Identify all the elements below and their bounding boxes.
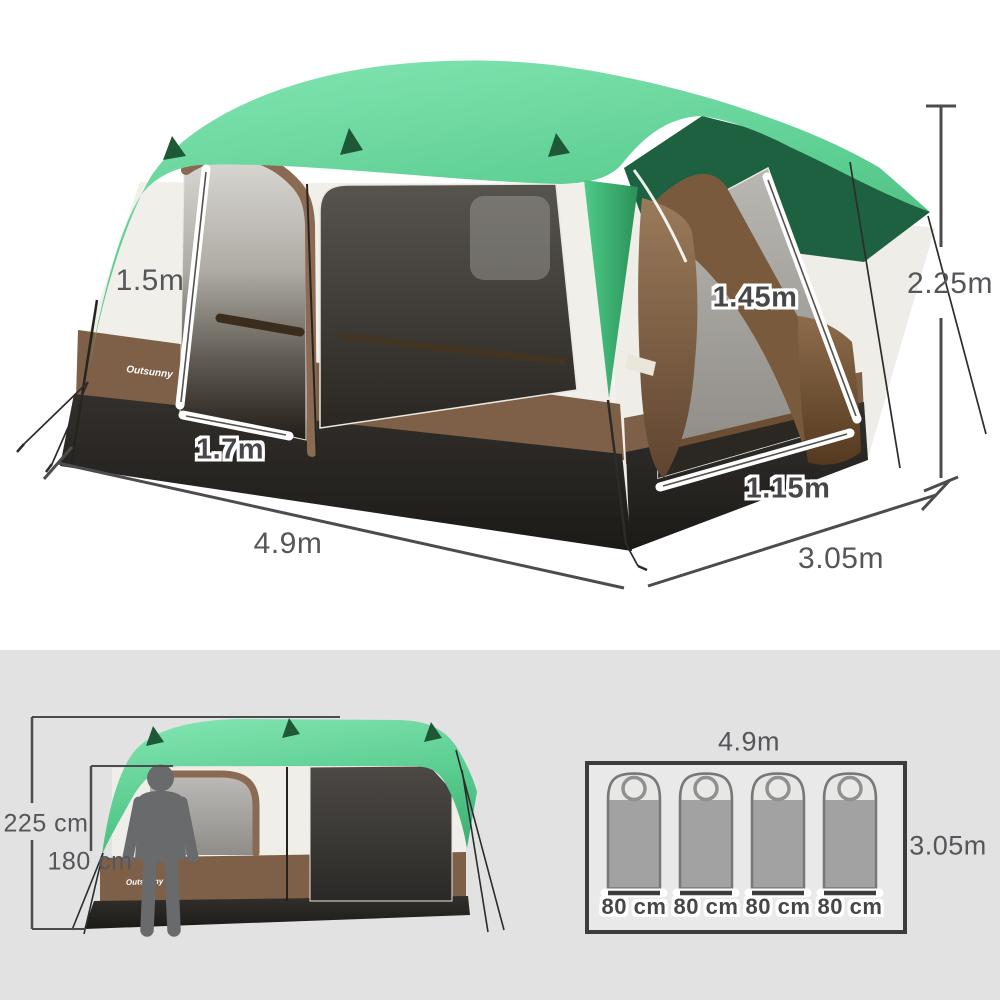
pillow-circle <box>695 778 717 800</box>
bag-width-label: 80 cm <box>818 896 883 918</box>
person-head <box>147 765 174 792</box>
bag-width-label: 80 cm <box>602 896 667 918</box>
pillow-circle <box>767 778 789 800</box>
sleeping-bag <box>749 774 807 894</box>
small-tent-dark-mesh <box>310 766 452 901</box>
front-door-width-label: 1.7m <box>196 436 264 465</box>
stake <box>638 566 647 570</box>
person-leg <box>171 862 174 930</box>
tent-depth-label: 3.05m <box>798 544 884 574</box>
pillow-circle <box>623 778 645 800</box>
scale-and-floorplan-panel: Outsunny <box>0 650 1000 1000</box>
sleeping-bag <box>677 774 735 894</box>
side-door-height-label: 1.45m <box>713 284 798 313</box>
floor-plan-length-label: 4.9m <box>718 729 780 756</box>
bag-width-label: 80 cm <box>746 896 811 918</box>
pillow-circle <box>839 778 861 800</box>
stake <box>17 444 24 452</box>
scale-person-height-label: 180 cm <box>48 850 133 875</box>
tent-dimension-infographic: Outsunny <box>0 0 1000 1000</box>
tent-height-label: 2.25m <box>907 269 993 299</box>
guy-rope <box>928 216 986 434</box>
tent-front-face <box>60 155 632 551</box>
front-door-height-label: 1.5m <box>116 266 185 296</box>
bag-width-label: 80 cm <box>674 896 739 918</box>
tent-length-label: 4.9m <box>254 529 323 559</box>
person-leg <box>147 862 150 930</box>
floor-plan-depth-label: 3.05m <box>909 833 987 860</box>
scale-tent-height-label: 225 cm <box>4 812 89 837</box>
side-door-width-label: 1.15m <box>746 475 831 504</box>
back-window-seen-through <box>470 196 550 280</box>
sleeping-bag <box>605 774 663 894</box>
sleeping-bag <box>821 774 879 894</box>
